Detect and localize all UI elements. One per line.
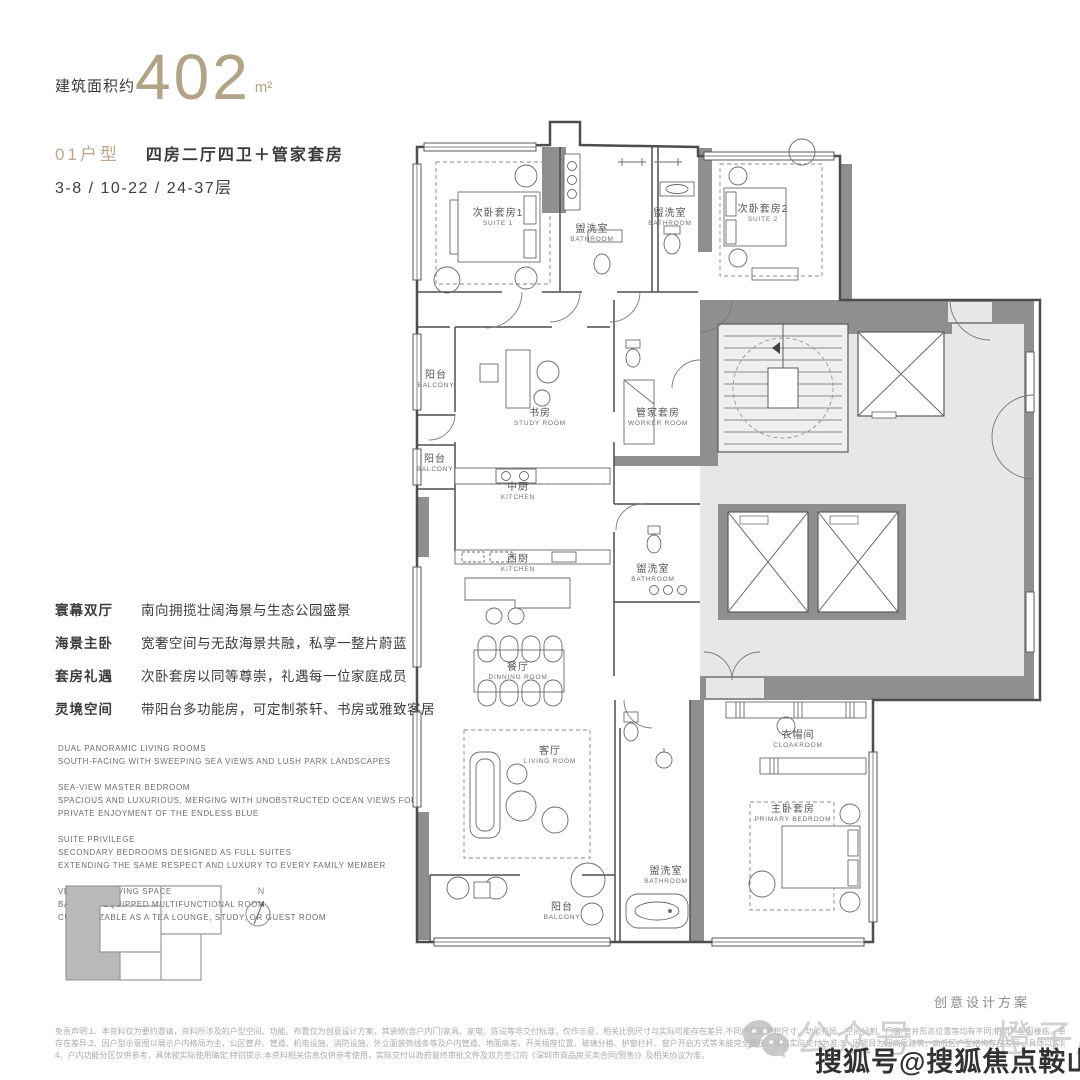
- interior-walls: [417, 147, 700, 942]
- unit-description: 四房二厅四卫＋管家套房: [146, 141, 344, 165]
- feature-line-en: SOUTH-FACING WITH SWEEPING SEA VIEWS AND…: [58, 755, 417, 768]
- floor-plan: 次卧套房1SUITE 1盥洗室BATHROOM盥洗室BATHROOM次卧套房2S…: [402, 112, 1042, 992]
- feature-term: 灵境空间: [55, 693, 115, 726]
- hall-gap: [706, 678, 764, 698]
- compass: N: [246, 886, 270, 926]
- feature-term: 套房礼遇: [55, 660, 115, 693]
- feature-line-en: DUAL PANORAMIC LIVING ROOMS: [58, 742, 417, 755]
- feature-row: 寰幕双厅南向拥揽壮阔海景与生态公园盛景: [55, 594, 435, 627]
- unit-location-highlight: [66, 886, 120, 980]
- staircase: [718, 324, 848, 452]
- area-unit: m²: [255, 79, 273, 106]
- feature-desc: 南向拥揽壮阔海景与生态公园盛景: [141, 594, 351, 627]
- unit-line: 01户型 四房二厅四卫＋管家套房: [55, 140, 344, 165]
- feature-row: 灵境空间带阳台多功能房，可定制茶轩、书房或雅致客居: [55, 693, 435, 726]
- master-furniture: [749, 802, 860, 912]
- bath1-fixtures: [564, 154, 622, 274]
- living-furniture: [464, 730, 590, 858]
- north-label: N: [258, 886, 265, 896]
- feature-line-en: SEA-VIEW MASTER BEDROOM: [58, 781, 417, 794]
- feature-row: 海景主卧宽奢空间与无敌海景共融，私享一整片蔚蓝: [55, 627, 435, 660]
- area-value: 402: [135, 48, 251, 106]
- floor-range: 3-8 / 10-22 / 24-37层: [55, 174, 233, 198]
- floorplan-page: 建筑面积约 402 m² 01户型 四房二厅四卫＋管家套房 3-8 / 10-2…: [0, 0, 1080, 1080]
- watermark-dark: 搜狐号@搜狐焦点鞍山站: [815, 1040, 1080, 1079]
- feature-desc: 带阳台多功能房，可定制茶轩、书房或雅致客居: [141, 693, 435, 726]
- feature-row: 套房礼遇次卧套房以同等尊崇，礼遇每一位家庭成员: [55, 660, 435, 693]
- cloakroom-furniture: [726, 702, 866, 774]
- elevators-lower: [718, 504, 906, 620]
- feature-block-en: DUAL PANORAMIC LIVING ROOMSSOUTH-FACING …: [58, 742, 417, 768]
- feature-line-en: SUITE PRIVILEGE: [58, 833, 417, 846]
- bath-center-fixtures: [647, 526, 687, 595]
- feature-line-en: SECONDARY BEDROOMS DESIGNED AS FULL SUIT…: [58, 846, 417, 859]
- study-furniture: [480, 350, 559, 408]
- unit-type: 01户型: [55, 140, 120, 165]
- feature-list: 寰幕双厅南向拥揽壮阔海景与生态公园盛景海景主卧宽奢空间与无敌海景共融，私享一整片…: [55, 594, 435, 726]
- feature-desc: 宽奢空间与无敌海景共融，私享一整片蔚蓝: [141, 627, 407, 660]
- key-plan-svg: N: [58, 872, 293, 1004]
- feature-line-en: PRIVATE ENJOYMENT OF THE ENDLESS BLUE: [58, 807, 417, 820]
- feature-term: 海景主卧: [55, 627, 115, 660]
- elevator-upper: [858, 332, 944, 418]
- feature-desc: 次卧套房以同等尊崇，礼遇每一位家庭成员: [141, 660, 407, 693]
- feature-block-en: SUITE PRIVILEGESECONDARY BEDROOMS DESIGN…: [58, 833, 417, 872]
- bath2-fixtures: [660, 182, 694, 254]
- feature-term: 寰幕双厅: [55, 594, 115, 627]
- area-header: 建筑面积约 402 m²: [55, 48, 272, 106]
- worker-room-furniture: [624, 340, 654, 444]
- area-label: 建筑面积约: [55, 75, 135, 106]
- key-plan: N: [58, 872, 293, 1004]
- wechat-icon: [740, 1012, 792, 1064]
- kitchen-west-furniture: [455, 550, 610, 624]
- balcony-furniture: [447, 863, 605, 925]
- dining-furniture: [474, 636, 564, 706]
- master-bath-fixtures: [624, 712, 688, 928]
- feature-block-en: SEA-VIEW MASTER BEDROOMSPACIOUS AND LUXU…: [58, 781, 417, 820]
- feature-line-en: EXTENDING THE SAME RESPECT AND LUXURY TO…: [58, 859, 417, 872]
- feature-line-en: SPACIOUS AND LUXURIOUS, MERGING WITH UNO…: [58, 794, 417, 807]
- kitchen-mid-furniture: [455, 468, 610, 484]
- floor-plan-svg: [402, 112, 1042, 992]
